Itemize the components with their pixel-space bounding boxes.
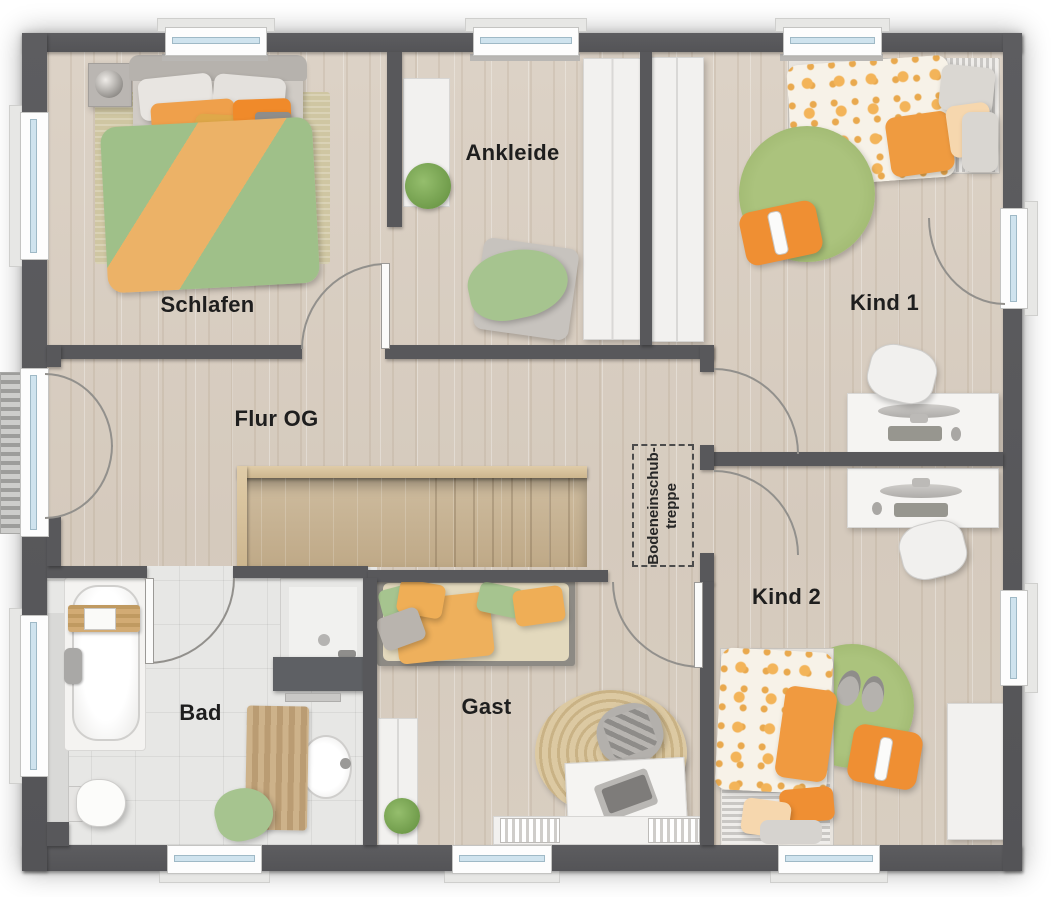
- wall-bad-flur-left: [47, 566, 147, 578]
- room-label-kind2: Kind 2: [709, 584, 864, 610]
- wall-flur-kind-stub-low: [700, 553, 714, 584]
- room-label-ankleide: Ankleide: [435, 140, 590, 166]
- kid2-sideboard: [947, 703, 1010, 840]
- wall-bad-flur-right: [233, 566, 368, 578]
- duct-shaft: [47, 822, 69, 846]
- wall-bad-gast: [363, 578, 377, 845]
- door-leaf-schlafen: [381, 263, 390, 349]
- window-glass: [174, 855, 255, 862]
- bath-faucet: [64, 648, 82, 684]
- kid2-desk: [847, 468, 999, 528]
- window-glass: [172, 37, 260, 44]
- shower-drain: [318, 634, 330, 646]
- wall-ankleide-flur: [385, 345, 714, 359]
- room-label-kind1: Kind 1: [807, 290, 962, 316]
- wall-pillar-left-upper: [47, 345, 61, 367]
- kid1-desk: [847, 393, 999, 453]
- kid1-orange-fold: [884, 110, 956, 178]
- wall-ankleide-kind1: [640, 52, 652, 345]
- plant-gast: [384, 798, 420, 834]
- window-glass: [1010, 215, 1017, 302]
- wall-exterior-right: [1003, 33, 1022, 871]
- room-label-gast: Gast: [409, 694, 564, 720]
- kid1-pillow-big-gray: [962, 112, 998, 172]
- bath-book: [84, 608, 116, 630]
- attic-stair-label: Bodeneinschub- treppe: [645, 431, 681, 581]
- window-glass: [30, 375, 37, 530]
- stair-treads: [435, 478, 587, 567]
- balcony-railing: [0, 372, 22, 534]
- door-leaf-bad: [145, 578, 154, 664]
- guest-books-left: [500, 818, 560, 843]
- kid2-mouse: [872, 502, 882, 515]
- wardrobe-kind1: [650, 57, 704, 342]
- floorplan-canvas: Bodeneinschub- treppe Schlafen Ankleide …: [0, 0, 1051, 897]
- room-label-flur: Flur OG: [199, 406, 354, 432]
- wall-schlafen-flur: [47, 345, 302, 359]
- wall-kind1-kind2: [706, 452, 1003, 466]
- towel-bar: [285, 693, 341, 702]
- kid1-mouse: [951, 427, 961, 441]
- bed-duvet: [100, 117, 320, 294]
- guest-books-right: [648, 818, 700, 843]
- attic-stair-outline: Bodeneinschub- treppe: [632, 444, 694, 567]
- window-glass: [480, 37, 572, 44]
- plant-ankleide: [405, 163, 451, 209]
- room-label-schlafen: Schlafen: [130, 292, 285, 318]
- window-glass: [30, 622, 37, 770]
- window-glass: [459, 855, 545, 862]
- kid1-keyboard: [888, 426, 942, 441]
- wall-gast-flur: [368, 570, 608, 582]
- table-lamp: [95, 70, 123, 98]
- bath-vanity: [273, 657, 365, 691]
- wall-pillar-left-lower: [47, 517, 61, 566]
- wall-flur-kind-stub-top: [700, 345, 714, 372]
- kid2-monitor-stand: [912, 478, 930, 487]
- window-glass: [1010, 597, 1017, 679]
- kid2-pillow-gray: [760, 820, 822, 844]
- kid2-keyboard: [894, 503, 948, 517]
- toilet: [76, 779, 126, 827]
- guest-pillow-orange-right: [512, 585, 567, 628]
- kid1-monitor-stand: [910, 414, 928, 423]
- stair-railing: [237, 466, 587, 478]
- wall-schlafen-ankleide: [387, 52, 402, 227]
- wall-flur-kind-stub-mid: [700, 445, 714, 470]
- wardrobe-ankleide: [583, 58, 642, 340]
- window-glass: [790, 37, 875, 44]
- door-leaf-gast: [694, 582, 703, 668]
- window-glass: [30, 119, 37, 253]
- room-label-bad: Bad: [123, 700, 278, 726]
- stair-railing-left: [237, 466, 247, 567]
- washbasin-faucet: [340, 758, 351, 769]
- window-glass: [785, 855, 873, 862]
